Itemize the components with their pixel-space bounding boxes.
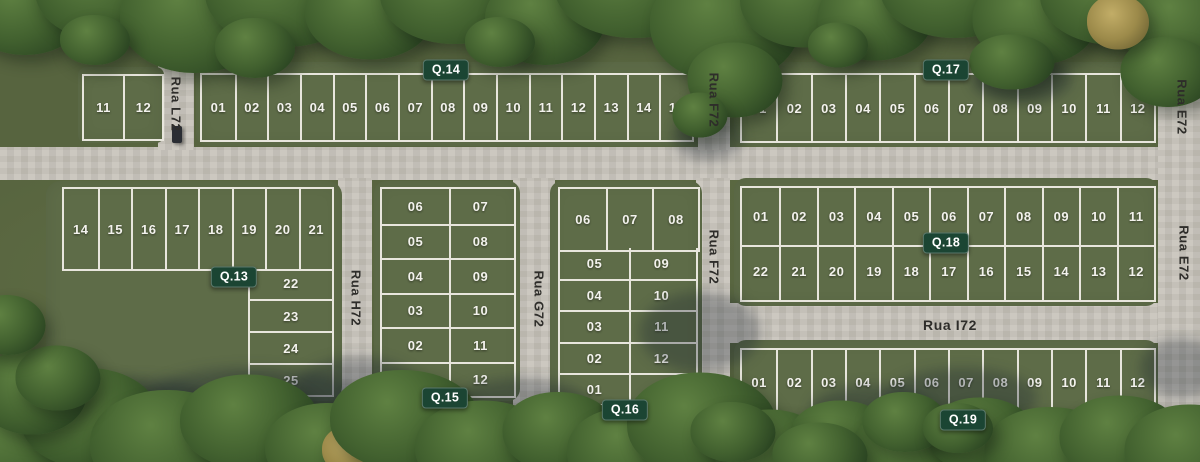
tree [970, 35, 1055, 90]
lot-cell: 02 [779, 188, 816, 245]
street-label-rua-f72-top: Rua F72 [707, 73, 722, 128]
lot-cell: 11 [1085, 75, 1119, 141]
block-badge-q19: Q.19 [940, 410, 986, 431]
lot-cell: 06 [560, 189, 606, 250]
lot-cell: 03 [811, 75, 845, 141]
block-badge-q13: Q.13 [211, 267, 257, 288]
lot-cell: 02 [776, 350, 810, 415]
lot-cell: 01 [742, 188, 779, 245]
lot-cell: 09 [627, 248, 696, 279]
lot-cell: 05 [382, 224, 449, 259]
lot-cell: 04 [382, 258, 449, 293]
lot-cell: 19 [232, 189, 266, 269]
street-label-rua-f72-mid: Rua F72 [707, 230, 722, 285]
lot-cell: 10 [447, 293, 514, 328]
lot-cell: 04 [300, 75, 333, 140]
lot-grid-q17: 010203040506070809101112 [740, 73, 1156, 143]
block-badge-q15: Q.15 [422, 388, 468, 409]
lot-cell: 01 [202, 75, 235, 140]
lot-cell: 02 [235, 75, 268, 140]
lot-cell: 22 [250, 267, 332, 299]
tree-shadow [640, 292, 760, 372]
street-label-rua-e72-top: Rua E72 [1175, 79, 1190, 135]
lot-cell: 03 [382, 293, 449, 328]
lot-cell: 11 [84, 76, 123, 139]
lot-grid-q16-left: 0504030201 [558, 248, 631, 406]
street-label-rua-i72: Rua I72 [923, 317, 977, 333]
lot-cell: 16 [131, 189, 165, 269]
lot-cell: 21 [779, 243, 816, 300]
lot-cell: 14 [64, 189, 98, 269]
lot-cell: 12 [1117, 243, 1154, 300]
lot-cell: 03 [267, 75, 300, 140]
block-badge-q14: Q.14 [423, 60, 469, 81]
lot-cell: 14 [1042, 243, 1079, 300]
lot-cell: 03 [817, 188, 854, 245]
street-main-horizontal [0, 147, 1200, 180]
lot-cell: 22 [742, 243, 779, 300]
block-badge-q16: Q.16 [602, 400, 648, 421]
lot-cell: 05 [560, 248, 629, 279]
street-label-rua-l72: Rua L72 [169, 77, 184, 132]
lot-grid-nw: 1112 [82, 74, 164, 141]
lot-cell: 12 [123, 76, 162, 139]
lot-cell: 09 [463, 75, 496, 140]
lot-grid-q13-row: 1415161718192021 [62, 187, 334, 271]
tree [808, 23, 868, 68]
lot-cell: 11 [447, 327, 514, 362]
lot-cell: 03 [560, 310, 629, 341]
lot-cell: 11 [529, 75, 562, 140]
lot-cell: 23 [250, 299, 332, 331]
lot-cell: 18 [198, 189, 232, 269]
block-badge-q18: Q.18 [923, 233, 969, 254]
lot-grid-q15-right: 070809101112 [447, 187, 516, 398]
lot-cell: 04 [854, 188, 891, 245]
lot-grid-q16-top: 060708 [558, 187, 700, 252]
lot-cell: 06 [914, 75, 948, 141]
lot-grid-q14: 010203040506070809101112131415 [200, 73, 694, 142]
lot-cell: 15 [1004, 243, 1041, 300]
tree [465, 17, 535, 67]
tree [16, 346, 101, 411]
lot-cell: 10 [496, 75, 529, 140]
lot-cell: 08 [1004, 188, 1041, 245]
lot-cell: 06 [365, 75, 398, 140]
street-label-rua-g72: Rua G72 [532, 271, 547, 328]
street-label-rua-h72: Rua H72 [349, 270, 364, 326]
lot-cell: 06 [382, 189, 449, 224]
lot-cell: 17 [165, 189, 199, 269]
lot-cell: 19 [854, 243, 891, 300]
lot-cell: 07 [447, 189, 514, 224]
lot-cell: 07 [606, 189, 652, 250]
lot-cell: 08 [431, 75, 464, 140]
lot-cell: 02 [382, 327, 449, 362]
lot-cell: 07 [398, 75, 431, 140]
lot-cell: 12 [561, 75, 594, 140]
lot-cell: 14 [627, 75, 660, 140]
lot-cell: 04 [845, 75, 879, 141]
lot-cell: 02 [560, 342, 629, 373]
lot-cell: 05 [879, 75, 913, 141]
lot-cell: 08 [652, 189, 698, 250]
lot-cell: 21 [299, 189, 333, 269]
site-plan-map: 1112 010203040506070809101112131415 Q.14… [0, 0, 1200, 462]
lot-cell: 09 [1042, 188, 1079, 245]
lot-cell: 07 [967, 188, 1004, 245]
tree [60, 15, 130, 65]
tree [691, 402, 776, 462]
lot-cell: 11 [1117, 188, 1154, 245]
block-badge-q17: Q.17 [923, 60, 969, 81]
lot-cell: 13 [594, 75, 627, 140]
lot-cell: 04 [560, 279, 629, 310]
lot-cell: 20 [817, 243, 854, 300]
lot-cell: 15 [98, 189, 132, 269]
lot-cell: 10 [1079, 188, 1116, 245]
tree [215, 18, 295, 78]
lot-cell: 05 [333, 75, 366, 140]
street-label-rua-e72-mid: Rua E72 [1177, 225, 1192, 281]
lot-cell: 20 [265, 189, 299, 269]
lot-cell: 24 [250, 331, 332, 363]
lot-cell: 16 [967, 243, 1004, 300]
lot-cell: 08 [447, 224, 514, 259]
lot-cell: 09 [447, 258, 514, 293]
lot-cell: 13 [1079, 243, 1116, 300]
